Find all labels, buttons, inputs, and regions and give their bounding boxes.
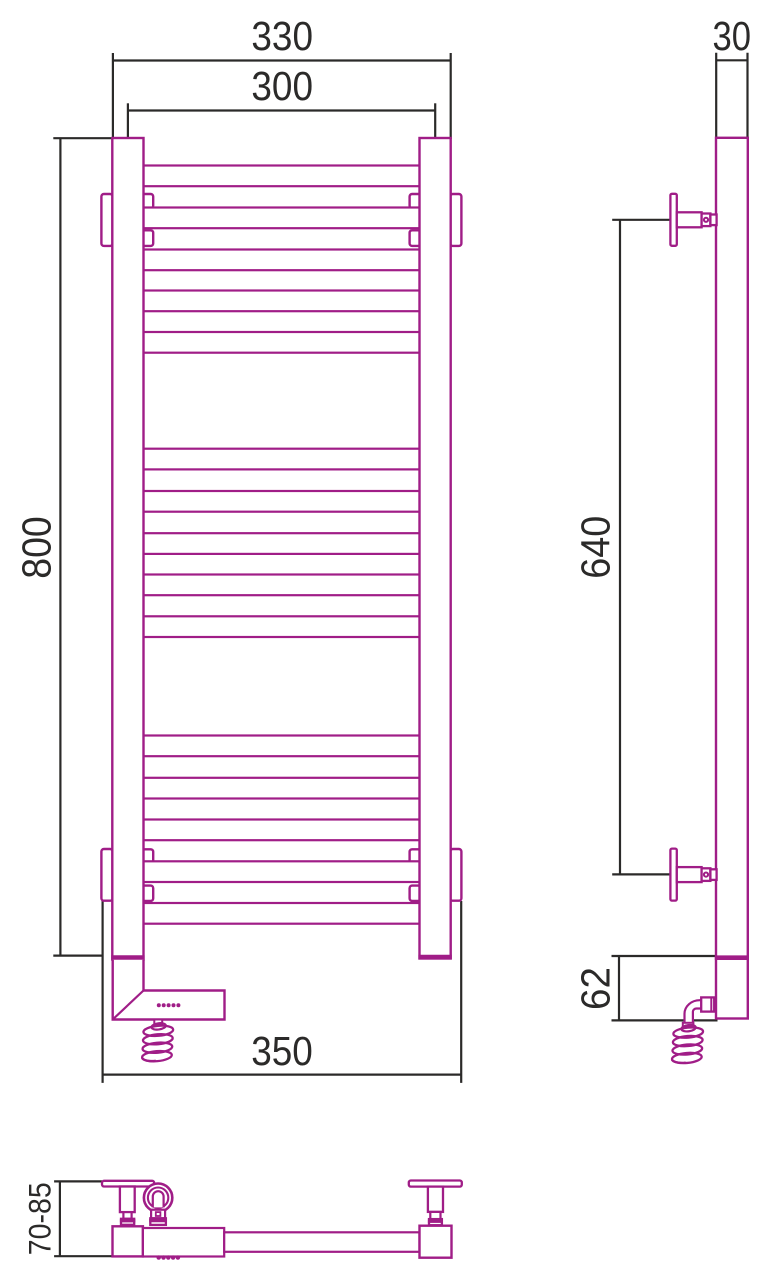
svg-text:640: 640 <box>573 516 619 579</box>
svg-text:800: 800 <box>14 516 60 579</box>
svg-text:70-85: 70-85 <box>22 1182 58 1255</box>
svg-text:330: 330 <box>251 13 313 59</box>
svg-text:62: 62 <box>573 967 619 1010</box>
svg-text:350: 350 <box>251 1028 313 1074</box>
svg-text:300: 300 <box>251 63 313 109</box>
svg-text:30: 30 <box>713 13 752 59</box>
